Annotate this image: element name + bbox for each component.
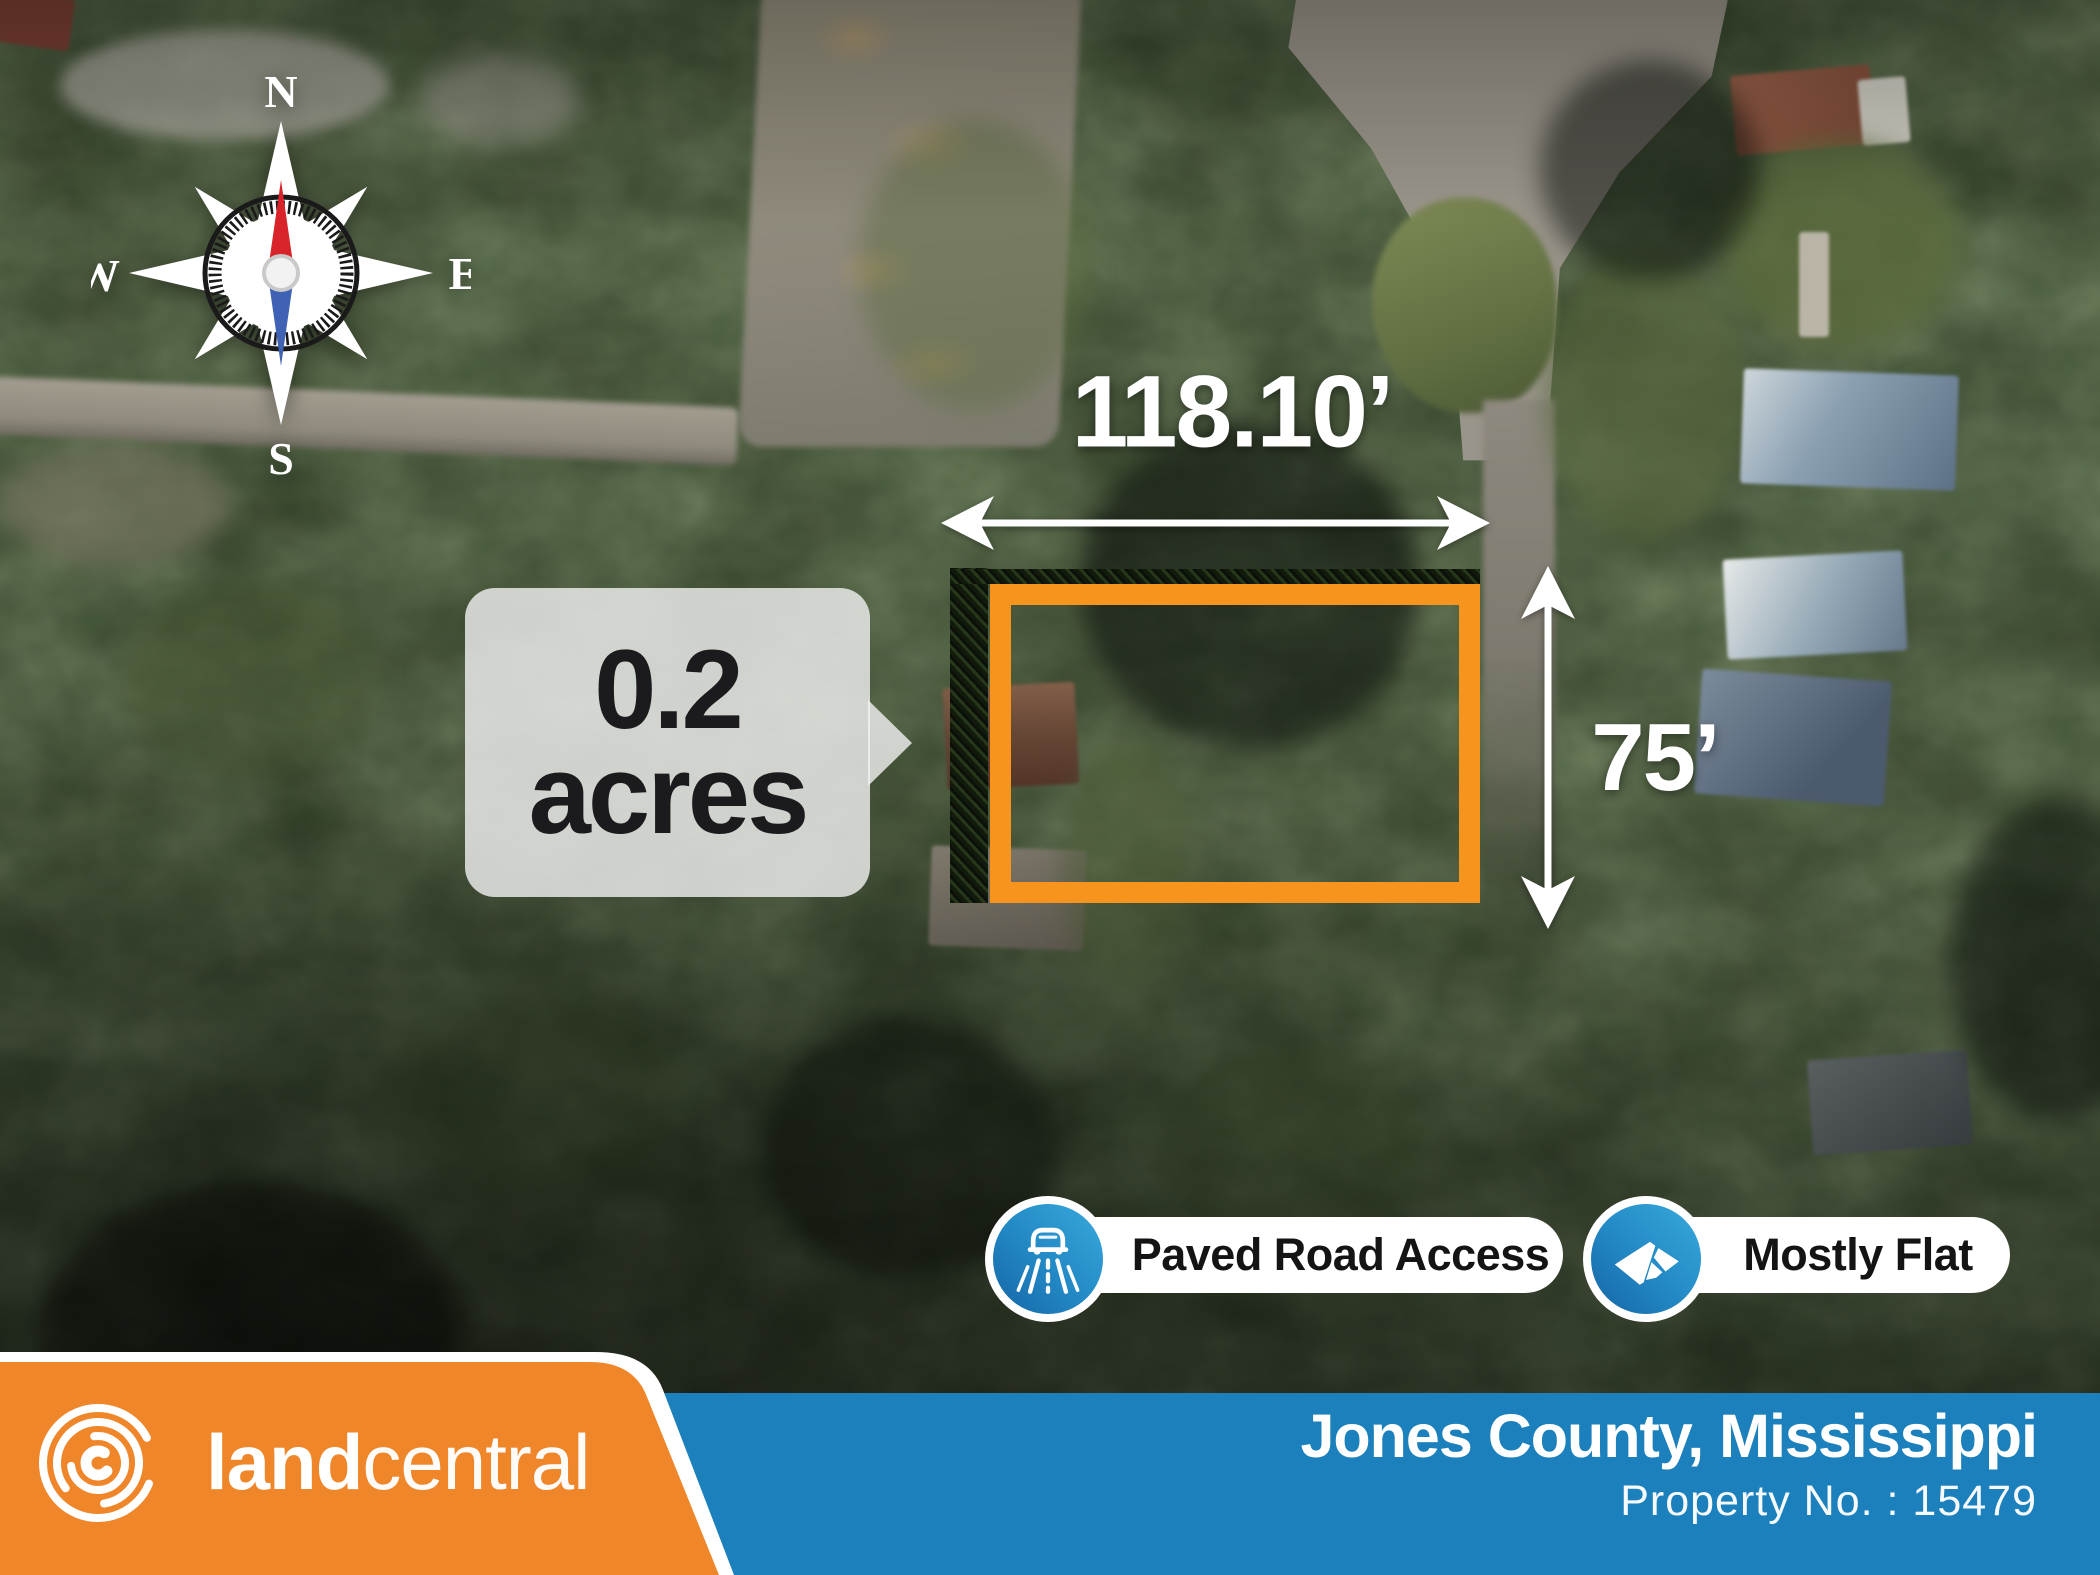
lot-width-label: 118.10’ — [1072, 354, 1393, 471]
area-callout-text: 0.2 acres — [465, 588, 870, 897]
paved-road-badge-label: Paved Road Access — [1132, 1229, 1550, 1281]
paved-road-icon — [1009, 1220, 1087, 1298]
property-location: Jones County, Mississippi — [1300, 1404, 2037, 1468]
mostly-flat-badge-label: Mostly Flat — [1743, 1229, 1973, 1281]
compass-label-south: S — [268, 433, 294, 484]
area-value: 0.2 — [594, 638, 741, 742]
property-flyer: 118.10’ 75’ 0.2 acres N S W E Pav — [0, 0, 2100, 1575]
paved-road-badge-icon-circle — [985, 1196, 1111, 1322]
mostly-flat-badge-icon-circle — [1583, 1196, 1709, 1322]
compass-rose: N S W E — [91, 58, 471, 488]
compass-pivot — [264, 256, 298, 290]
compass-label-east: E — [449, 248, 471, 299]
logo-word-land: land — [206, 1418, 362, 1506]
compass-label-north: N — [264, 66, 297, 117]
width-arrow-line — [960, 520, 1468, 527]
compass-label-west: W — [91, 250, 120, 301]
landcentral-logotype: landcentral — [206, 1417, 589, 1508]
flat-terrain-icon — [1607, 1220, 1685, 1298]
area-unit: acres — [529, 743, 807, 847]
height-arrow-line — [1545, 585, 1552, 910]
logo-word-central: central — [362, 1418, 589, 1506]
lot-height-label: 75’ — [1591, 703, 1718, 813]
property-number: Property No. : 15479 — [1300, 1477, 2037, 1526]
paved-road-badge: Paved Road Access — [1048, 1217, 1563, 1293]
